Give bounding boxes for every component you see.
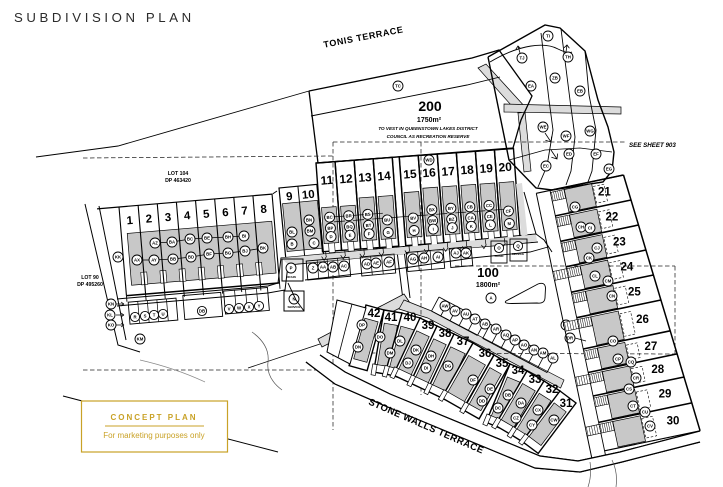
svg-text:CH: CH (578, 225, 584, 230)
svg-text:CY: CY (529, 423, 535, 428)
svg-text:DR: DR (567, 336, 574, 341)
svg-text:33: 33 (529, 374, 542, 386)
svg-text:AI: AI (436, 255, 440, 260)
svg-text:BW: BW (429, 218, 437, 224)
svg-text:AF: AF (386, 260, 392, 265)
svg-text:DO: DO (377, 335, 384, 340)
svg-text:DP: DP (359, 323, 365, 328)
svg-text:EG: EG (606, 167, 613, 172)
svg-text:DP 495260: DP 495260 (77, 282, 103, 288)
svg-text:100: 100 (477, 265, 499, 280)
svg-text:13: 13 (358, 170, 373, 185)
svg-text:37: 37 (457, 336, 470, 348)
svg-text:CT: CT (630, 404, 636, 409)
svg-text:BC: BC (187, 237, 193, 242)
svg-text:KL: KL (107, 313, 113, 318)
svg-text:36: 36 (479, 348, 492, 360)
svg-text:20: 20 (498, 160, 513, 175)
svg-text:16: 16 (422, 165, 437, 180)
svg-text:E: E (348, 233, 351, 238)
svg-text:B: B (290, 242, 293, 247)
svg-text:Z: Z (312, 266, 315, 271)
svg-text:CONCEPT PLAN: CONCEPT PLAN (110, 413, 197, 422)
svg-text:18: 18 (460, 162, 475, 177)
svg-text:CK: CK (586, 256, 593, 261)
svg-text:AZ: AZ (152, 241, 158, 246)
svg-text:BF: BF (206, 252, 212, 257)
svg-text:BS: BS (365, 212, 371, 217)
svg-text:AV: AV (452, 309, 458, 314)
svg-text:22: 22 (606, 211, 619, 223)
svg-text:CU: CU (642, 410, 648, 415)
svg-text:ZB: ZB (552, 76, 558, 81)
svg-text:CG: CG (572, 205, 579, 210)
svg-text:BM: BM (307, 229, 314, 234)
svg-text:LOT 104: LOT 104 (168, 171, 189, 177)
svg-text:AD: AD (364, 262, 370, 267)
svg-text:DA: DA (518, 401, 524, 406)
svg-text:1800m²: 1800m² (476, 282, 501, 289)
svg-text:AH: AH (421, 256, 427, 261)
svg-text:AT: AT (472, 317, 478, 322)
svg-text:BN: BN (306, 218, 312, 223)
svg-text:26: 26 (636, 314, 649, 326)
svg-text:BX: BX (429, 207, 435, 212)
svg-text:CP: CP (615, 357, 621, 362)
svg-text:WG: WG (586, 129, 594, 134)
svg-text:BT: BT (365, 223, 371, 228)
svg-text:6: 6 (222, 207, 229, 219)
svg-text:BP: BP (327, 225, 333, 230)
svg-text:9: 9 (286, 191, 294, 204)
svg-text:EF: EF (593, 152, 599, 157)
svg-text:BZ: BZ (449, 217, 455, 222)
svg-text:TJ: TJ (519, 56, 525, 61)
svg-text:BI: BI (242, 234, 246, 239)
svg-text:WE: WE (540, 125, 547, 130)
svg-text:DB: DB (199, 309, 205, 314)
svg-text:BL: BL (289, 230, 295, 235)
svg-text:DL: DL (397, 339, 403, 344)
svg-text:S: S (144, 314, 147, 319)
svg-text:BB: BB (170, 257, 176, 262)
svg-text:SERVICE: SERVICE (287, 305, 300, 309)
svg-text:DD: DD (479, 399, 485, 404)
svg-text:CQ: CQ (628, 360, 635, 365)
svg-text:40: 40 (404, 312, 417, 324)
svg-text:CV: CV (647, 424, 653, 429)
svg-text:23: 23 (613, 236, 626, 248)
svg-text:AR: AR (493, 327, 500, 332)
svg-text:AC: AC (341, 264, 347, 269)
svg-text:BK: BK (260, 246, 267, 251)
svg-text:10: 10 (301, 189, 315, 202)
svg-text:AN: AN (531, 348, 537, 353)
svg-text:CO: CO (610, 339, 617, 344)
svg-text:SEE SHEET 903: SEE SHEET 903 (629, 142, 676, 149)
svg-text:CC: CC (486, 203, 493, 208)
svg-text:Y: Y (258, 304, 261, 309)
svg-text:AM: AM (540, 351, 547, 356)
svg-text:V: V (228, 307, 231, 312)
svg-text:CM: CM (605, 279, 612, 284)
svg-text:CE: CE (487, 214, 493, 219)
svg-text:KM: KM (137, 337, 144, 342)
svg-text:T: T (153, 313, 156, 318)
svg-text:CF: CF (505, 208, 511, 213)
svg-text:CB: CB (467, 204, 474, 209)
svg-text:DE: DE (487, 387, 493, 392)
svg-text:CN: CN (609, 294, 615, 299)
svg-text:BG: BG (225, 251, 232, 256)
svg-text:AY: AY (151, 258, 157, 263)
svg-text:KN: KN (108, 302, 114, 307)
svg-text:CR: CR (633, 376, 640, 381)
svg-text:CZ: CZ (513, 416, 519, 421)
svg-text:TC: TC (395, 84, 401, 89)
svg-text:12: 12 (339, 171, 354, 186)
svg-text:H: H (412, 228, 415, 233)
svg-text:WF: WF (563, 134, 570, 139)
svg-text:DF: DF (470, 378, 476, 383)
svg-text:DK: DK (413, 348, 420, 353)
svg-text:TI: TI (546, 34, 550, 39)
svg-text:LOT 90: LOT 90 (81, 275, 99, 281)
svg-text:DN: DN (355, 345, 361, 350)
svg-text:AL: AL (550, 356, 556, 361)
svg-text:CL: CL (592, 274, 598, 279)
svg-text:AU: AU (463, 312, 469, 317)
svg-text:7: 7 (241, 205, 248, 217)
svg-text:AK: AK (463, 251, 470, 256)
svg-text:35: 35 (496, 358, 509, 370)
svg-text:KK: KK (115, 255, 122, 260)
svg-text:COUNCIL AS RECREATION RESERVE: COUNCIL AS RECREATION RESERVE (387, 134, 471, 139)
svg-text:BJ: BJ (242, 249, 248, 254)
svg-text:CX: CX (535, 408, 541, 413)
svg-text:CA: CA (467, 215, 474, 220)
svg-text:AW: AW (442, 304, 450, 309)
svg-text:41: 41 (385, 312, 398, 324)
svg-text:CJ: CJ (594, 246, 600, 251)
svg-text:DP 463420: DP 463420 (165, 178, 191, 184)
svg-text:27: 27 (645, 341, 658, 353)
svg-text:32: 32 (546, 384, 559, 396)
svg-text:DI: DI (424, 366, 428, 371)
svg-text:2: 2 (145, 213, 152, 225)
svg-text:28: 28 (651, 364, 664, 376)
svg-text:31: 31 (560, 398, 573, 410)
svg-text:For marketing purposes only: For marketing purposes only (103, 431, 204, 440)
svg-text:30: 30 (667, 416, 680, 428)
svg-text:BC: BC (326, 215, 333, 220)
svg-text:BU: BU (384, 217, 391, 222)
svg-text:BY: BY (448, 206, 454, 211)
svg-text:15: 15 (403, 167, 418, 182)
svg-text:A: A (489, 296, 492, 301)
svg-text:AO: AO (521, 343, 528, 348)
svg-text:DH: DH (428, 354, 434, 359)
svg-text:21: 21 (598, 186, 611, 198)
svg-text:SUBDIVISION PLAN: SUBDIVISION PLAN (14, 10, 195, 25)
svg-text:DRAIN: DRAIN (286, 275, 296, 279)
svg-text:AJ: AJ (453, 251, 459, 256)
svg-text:P: P (290, 266, 293, 271)
svg-text:200: 200 (418, 98, 442, 114)
svg-text:AA: AA (320, 265, 326, 270)
svg-text:DJ: DJ (405, 361, 411, 366)
svg-text:11: 11 (320, 173, 334, 188)
svg-text:14: 14 (377, 169, 392, 184)
svg-text:CS: CS (626, 387, 632, 392)
svg-text:DC: DC (495, 406, 501, 411)
svg-text:DB: DB (505, 393, 511, 398)
svg-text:17: 17 (441, 164, 456, 179)
svg-text:3: 3 (164, 212, 171, 224)
svg-text:EA: EA (528, 84, 534, 89)
svg-text:39: 39 (422, 320, 435, 332)
svg-text:CW: CW (550, 418, 558, 423)
svg-text:BE: BE (204, 236, 210, 241)
svg-text:D: D (329, 234, 332, 239)
svg-text:19: 19 (479, 161, 494, 176)
svg-text:DM: DM (387, 351, 394, 356)
svg-text:ED: ED (566, 152, 572, 157)
svg-text:KO: KO (108, 323, 115, 328)
svg-text:42: 42 (368, 308, 381, 320)
svg-text:AP: AP (512, 338, 518, 343)
svg-text:AX: AX (134, 258, 140, 263)
svg-text:EB: EB (577, 89, 583, 94)
svg-text:BA: BA (169, 240, 175, 245)
svg-text:29: 29 (659, 389, 672, 401)
svg-text:CI: CI (588, 226, 592, 231)
svg-text:EC: EC (543, 164, 549, 169)
svg-text:AB: AB (482, 322, 488, 327)
svg-text:AE: AE (373, 261, 379, 266)
svg-text:34: 34 (512, 365, 525, 377)
svg-text:TH: TH (565, 55, 571, 60)
svg-text:U: U (161, 312, 164, 317)
svg-text:24: 24 (621, 261, 634, 273)
svg-text:AG: AG (410, 257, 417, 262)
svg-text:DG: DG (445, 364, 452, 369)
svg-text:AQ: AQ (503, 333, 510, 338)
svg-text:1750m²: 1750m² (417, 117, 442, 124)
svg-text:BD: BD (188, 255, 194, 260)
svg-text:TO VEST IN QUEENSTOWN LAKES DI: TO VEST IN QUEENSTOWN LAKES DISTRICT (378, 126, 479, 131)
svg-text:BQ: BQ (346, 224, 353, 230)
svg-text:WD: WD (425, 158, 432, 163)
svg-text:BH: BH (225, 235, 231, 240)
svg-text:AB: AB (330, 265, 336, 270)
svg-text:X: X (248, 305, 251, 310)
svg-text:38: 38 (439, 328, 452, 340)
svg-text:BV: BV (410, 215, 416, 220)
svg-text:C: C (312, 241, 315, 246)
svg-text:25: 25 (628, 286, 641, 298)
